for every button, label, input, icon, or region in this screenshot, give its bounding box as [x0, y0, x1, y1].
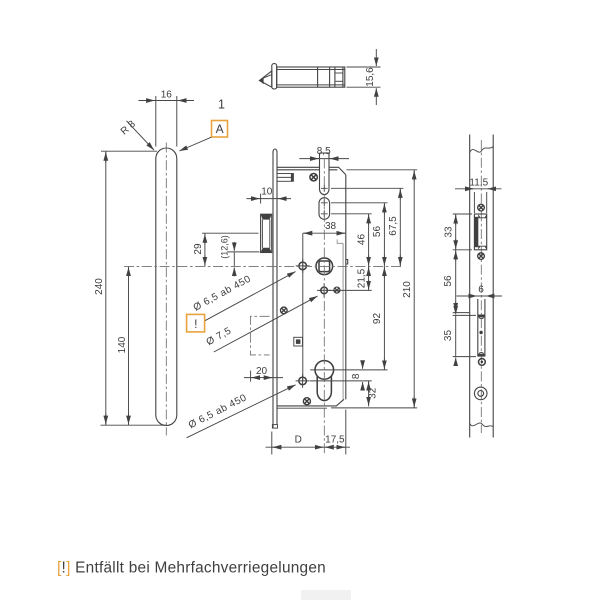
svg-text:1: 1 [218, 98, 225, 112]
svg-text:32: 32 [368, 387, 379, 399]
svg-text:35: 35 [443, 330, 454, 342]
svg-text:21,5: 21,5 [357, 268, 368, 288]
svg-text:11,5: 11,5 [469, 177, 488, 188]
svg-text:240: 240 [94, 278, 105, 295]
svg-text:92: 92 [372, 313, 383, 325]
svg-text:A: A [216, 122, 224, 136]
svg-text:33: 33 [443, 226, 454, 238]
svg-text:6: 6 [478, 284, 484, 295]
svg-text:(12,6): (12,6) [220, 235, 230, 259]
svg-text:[!] Entfällt bei Mehrfachverri: [!] Entfällt bei Mehrfachverriegelungen [57, 560, 326, 577]
svg-text:17,5: 17,5 [325, 434, 345, 445]
svg-text:38: 38 [325, 221, 337, 232]
svg-text:15,6: 15,6 [365, 67, 376, 87]
svg-text:R 8: R 8 [119, 119, 138, 138]
svg-text:20: 20 [256, 366, 268, 377]
svg-text:210: 210 [402, 281, 413, 298]
svg-text:!: ! [194, 317, 197, 331]
svg-text:46: 46 [356, 234, 367, 246]
svg-text:56: 56 [443, 275, 454, 287]
svg-text:16: 16 [161, 90, 173, 101]
svg-text:56: 56 [372, 226, 383, 238]
svg-text:Ø 7,5: Ø 7,5 [205, 325, 234, 348]
svg-text:29: 29 [193, 243, 204, 255]
svg-text:D: D [295, 434, 302, 445]
svg-text:Ø 6,5 ab 450: Ø 6,5 ab 450 [192, 274, 253, 314]
svg-text:8,5: 8,5 [317, 146, 331, 157]
svg-text:67,5: 67,5 [388, 216, 399, 236]
svg-text:8: 8 [351, 373, 362, 379]
svg-text:140: 140 [117, 336, 128, 353]
svg-text:10: 10 [261, 186, 273, 197]
